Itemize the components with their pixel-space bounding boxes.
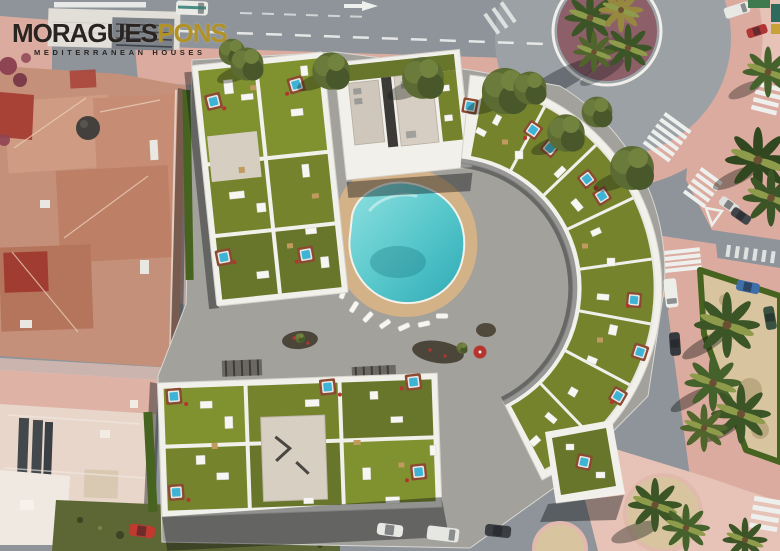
red-roof-section — [0, 92, 34, 140]
olive-tree — [582, 97, 613, 128]
logo: MORAGUESPONS MEDITERRANEAN HOUSES — [12, 20, 227, 57]
roof-patio — [207, 131, 262, 182]
island-palm-tree — [604, 24, 652, 72]
olive-tree — [610, 146, 654, 190]
olive-tree — [402, 57, 444, 99]
residential-complex — [143, 49, 664, 550]
logo-wordmark: MORAGUESPONS — [12, 20, 227, 46]
park-palm-tree — [680, 404, 728, 452]
logo-brand-primary: MORAGUES — [12, 18, 157, 48]
olive-tree — [312, 52, 349, 89]
parked-dark-car — [669, 332, 681, 356]
shop-awning — [748, 0, 770, 8]
park-palm-tree — [694, 292, 760, 358]
planter-palm-tree — [662, 504, 710, 551]
courtyard-tree — [295, 333, 305, 343]
red-roof-section — [3, 251, 48, 293]
pergola — [222, 359, 263, 376]
rooftop-dome — [76, 116, 100, 140]
aerial-render: MORAGUESPONS MEDITERRANEAN HOUSES — [0, 0, 780, 551]
block-c — [157, 372, 449, 551]
shop-front — [771, 24, 780, 34]
swimming-pool — [349, 183, 464, 304]
logo-tagline: MEDITERRANEAN HOUSES — [34, 49, 227, 57]
island-palm-tree — [573, 31, 615, 73]
block-a — [184, 52, 349, 309]
olive-tree — [514, 72, 547, 105]
terracotta-building-upper — [0, 66, 188, 370]
olive-tree — [231, 48, 264, 81]
olive-tree — [547, 114, 584, 151]
logo-brand-secondary: PONS — [157, 18, 227, 48]
stair-core — [261, 415, 328, 501]
courtyard-tree — [457, 343, 468, 354]
scene-canvas — [0, 0, 780, 551]
delivery-truck — [176, 0, 208, 15]
shop-front — [771, 4, 780, 22]
